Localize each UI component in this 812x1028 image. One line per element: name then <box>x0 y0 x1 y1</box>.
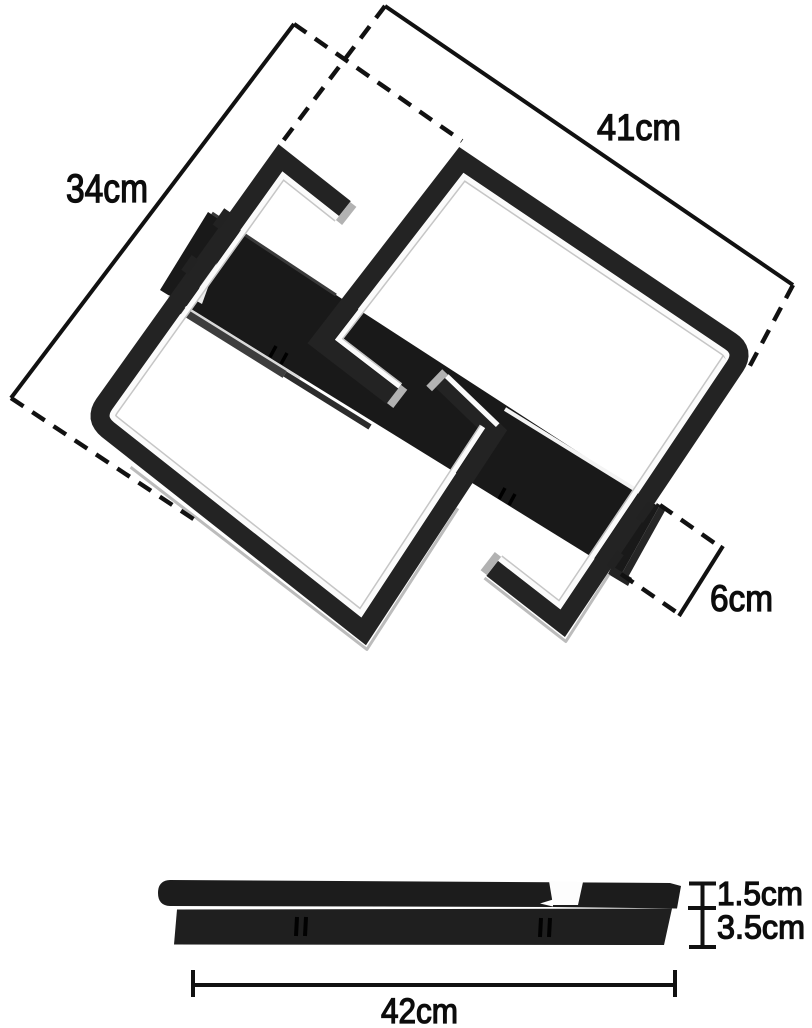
svg-text:41cm: 41cm <box>597 107 681 148</box>
svg-text:6cm: 6cm <box>710 578 773 619</box>
svg-text:42cm: 42cm <box>381 992 458 1028</box>
svg-text:1.5cm: 1.5cm <box>717 875 803 912</box>
svg-text:34cm: 34cm <box>66 167 148 211</box>
svg-text:3.5cm: 3.5cm <box>717 909 805 946</box>
